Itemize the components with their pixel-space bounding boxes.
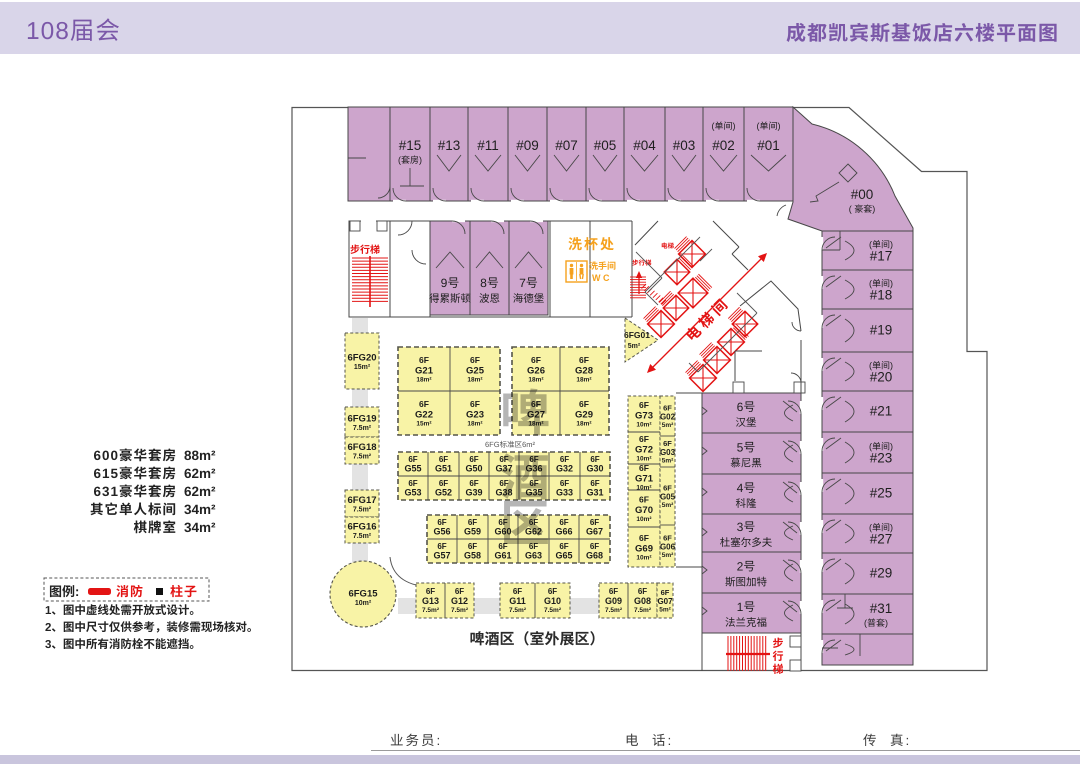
svg-text:G26: G26 [527,366,545,377]
svg-text:G70: G70 [635,505,653,516]
svg-text:7.5m²: 7.5m² [353,533,372,540]
svg-text:G72: G72 [635,445,653,456]
svg-text:#27: #27 [870,532,893,547]
svg-text:#21: #21 [870,404,893,419]
svg-text:6F: 6F [426,587,435,596]
svg-text:G22: G22 [415,410,433,421]
svg-text:5m²: 5m² [659,607,671,614]
svg-text:6F: 6F [548,587,557,596]
svg-text:6F: 6F [638,587,647,596]
svg-text:6F: 6F [437,542,446,551]
svg-text:G31: G31 [586,488,603,498]
svg-text:G66: G66 [555,527,572,537]
svg-text:#19: #19 [870,323,893,338]
svg-text:18m²: 18m² [416,376,432,383]
svg-text:#05: #05 [594,138,617,153]
svg-text:6F: 6F [437,518,446,527]
svg-text:G69: G69 [635,544,653,555]
svg-text:G61: G61 [494,551,511,561]
svg-text:5m²: 5m² [662,422,674,429]
svg-text:10m²: 10m² [636,421,652,428]
svg-text:6F: 6F [663,439,672,448]
svg-text:10m²: 10m² [355,600,372,607]
svg-text:6F: 6F [419,355,429,365]
svg-text:7.5m²: 7.5m² [544,607,562,614]
svg-text:G53: G53 [404,488,421,498]
svg-text:6F: 6F [469,479,478,488]
svg-text:G51: G51 [435,464,452,474]
svg-text:#09: #09 [516,138,539,153]
svg-text:#17: #17 [870,249,893,264]
svg-text:7.5m²: 7.5m² [353,425,372,432]
svg-text:#04: #04 [633,138,656,153]
svg-text:6F: 6F [590,479,599,488]
svg-text:6FG19: 6FG19 [347,413,376,424]
svg-text:7.5m²: 7.5m² [634,607,652,614]
svg-text:G67: G67 [586,527,603,537]
svg-text:6F: 6F [661,588,670,597]
svg-text:7.5m²: 7.5m² [509,607,527,614]
svg-text:6FG16: 6FG16 [347,521,376,532]
svg-text:6F: 6F [663,534,672,543]
svg-text:7.5m²: 7.5m² [451,607,469,614]
svg-text:#03: #03 [673,138,696,153]
svg-text:#00: #00 [851,187,874,202]
svg-text:#15: #15 [399,138,422,153]
svg-text:G09: G09 [605,596,622,606]
svg-text:6F: 6F [590,542,599,551]
svg-text:G28: G28 [575,366,593,377]
svg-text:5m²: 5m² [662,552,674,559]
svg-text:G29: G29 [575,410,593,421]
svg-text:G73: G73 [635,411,653,422]
svg-text:G11: G11 [509,596,526,606]
svg-text:G05: G05 [660,492,676,501]
svg-text:6F: 6F [639,495,649,505]
svg-text:6F: 6F [560,455,569,464]
svg-text:6FG20: 6FG20 [347,352,376,363]
svg-text:G52: G52 [435,488,452,498]
svg-text:6F: 6F [559,542,568,551]
svg-text:#25: #25 [870,486,893,501]
svg-text:6F: 6F [470,399,480,409]
svg-text:G32: G32 [556,464,573,474]
svg-text:G25: G25 [466,366,485,377]
svg-text:6FG18: 6FG18 [347,442,376,453]
svg-text:10m²: 10m² [636,484,652,491]
svg-text:G55: G55 [404,464,421,474]
svg-text:6F: 6F [639,533,649,543]
svg-text:G13: G13 [422,596,439,606]
svg-text:6FG17: 6FG17 [347,495,376,506]
svg-text:18m²: 18m² [576,420,592,427]
svg-text:6F: 6F [579,399,589,409]
svg-text:G71: G71 [635,474,654,485]
svg-text:6F: 6F [468,518,477,527]
svg-text:7.5m²: 7.5m² [422,607,440,614]
svg-text:#01: #01 [757,138,780,153]
svg-text:6F: 6F [609,587,618,596]
svg-text:10m²: 10m² [636,554,652,561]
svg-text:6F: 6F [559,518,568,527]
svg-text:18m²: 18m² [467,420,483,427]
svg-text:#07: #07 [555,138,578,153]
svg-text:6F: 6F [590,518,599,527]
svg-text:18m²: 18m² [576,376,592,383]
svg-text:G06: G06 [660,542,676,551]
svg-text:G21: G21 [415,366,434,377]
svg-text:6FG15: 6FG15 [348,588,378,599]
svg-text:G63: G63 [525,551,542,561]
svg-text:G50: G50 [465,464,482,474]
svg-text:#29: #29 [870,566,893,581]
svg-text:6F: 6F [639,463,649,473]
svg-text:G57: G57 [433,551,450,561]
svg-text:G30: G30 [586,464,603,474]
svg-text:#23: #23 [870,451,893,466]
svg-text:10m²: 10m² [636,516,652,523]
svg-text:G23: G23 [466,410,484,421]
svg-text:G08: G08 [634,596,651,606]
svg-text:18m²: 18m² [467,376,483,383]
svg-text:#31: #31 [870,601,893,616]
svg-text:G12: G12 [451,596,468,606]
svg-text:G33: G33 [556,488,573,498]
svg-text:5m²: 5m² [662,502,674,509]
svg-text:6F: 6F [408,455,417,464]
svg-text:#18: #18 [870,288,893,303]
svg-text:W C: W C [592,273,610,283]
svg-text:6F: 6F [560,479,569,488]
svg-text:G02: G02 [660,412,676,421]
svg-text:6F: 6F [639,400,649,410]
svg-text:G68: G68 [586,551,603,561]
svg-text:6F: 6F [579,355,589,365]
svg-text:6F: 6F [439,479,448,488]
svg-text:G65: G65 [555,551,572,561]
svg-text:#13: #13 [438,138,461,153]
svg-text:G58: G58 [464,551,481,561]
svg-text:6F: 6F [455,587,464,596]
svg-text:15m²: 15m² [354,364,371,371]
svg-text:G59: G59 [464,527,481,537]
svg-text:#02: #02 [712,138,735,153]
svg-text:15m²: 15m² [416,420,432,427]
svg-text:18m²: 18m² [528,376,544,383]
svg-text:6F: 6F [639,434,649,444]
svg-text:5m²: 5m² [662,458,674,465]
svg-text:6F: 6F [439,455,448,464]
svg-text:6F: 6F [419,399,429,409]
svg-text:6F: 6F [469,455,478,464]
svg-text:7.5m²: 7.5m² [353,506,372,513]
svg-text:6F: 6F [590,455,599,464]
svg-text:G39: G39 [465,488,482,498]
svg-text:6FG01: 6FG01 [624,330,650,340]
svg-text:6F: 6F [663,484,672,493]
svg-text:G07: G07 [657,597,673,606]
svg-text:#20: #20 [870,370,893,385]
svg-text:7.5m²: 7.5m² [605,607,623,614]
svg-text:6F: 6F [531,355,541,365]
svg-text:6F: 6F [513,587,522,596]
svg-text:7.5m²: 7.5m² [353,453,372,460]
svg-text:G56: G56 [433,527,450,537]
svg-text:6F: 6F [408,479,417,488]
svg-text:G03: G03 [660,448,676,457]
svg-text:G10: G10 [544,596,561,606]
svg-text:#11: #11 [477,138,499,153]
svg-text:6F: 6F [470,355,480,365]
svg-text:10m²: 10m² [636,455,652,462]
svg-text:6F: 6F [468,542,477,551]
svg-text:6F: 6F [663,404,672,413]
svg-text:5m²: 5m² [628,343,641,350]
